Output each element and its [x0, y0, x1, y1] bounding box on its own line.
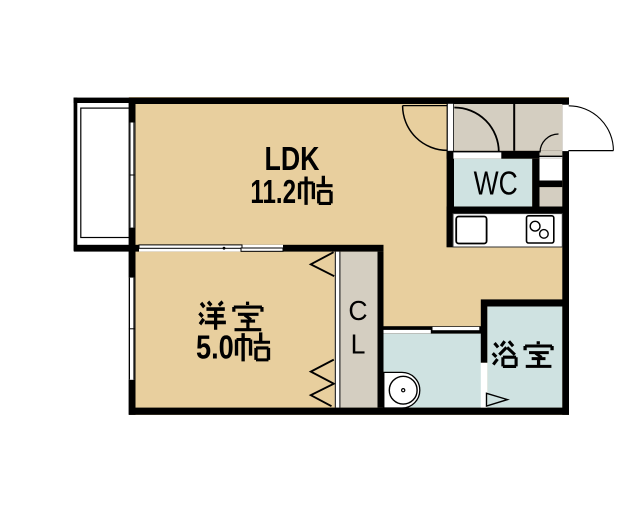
svg-text:5.0: 5.0: [196, 329, 234, 366]
svg-text:LDK: LDK: [265, 141, 320, 177]
svg-text:C: C: [348, 294, 367, 326]
svg-text:WC: WC: [474, 165, 518, 202]
svg-text:11.2: 11.2: [250, 174, 296, 211]
svg-text:L: L: [351, 328, 366, 360]
